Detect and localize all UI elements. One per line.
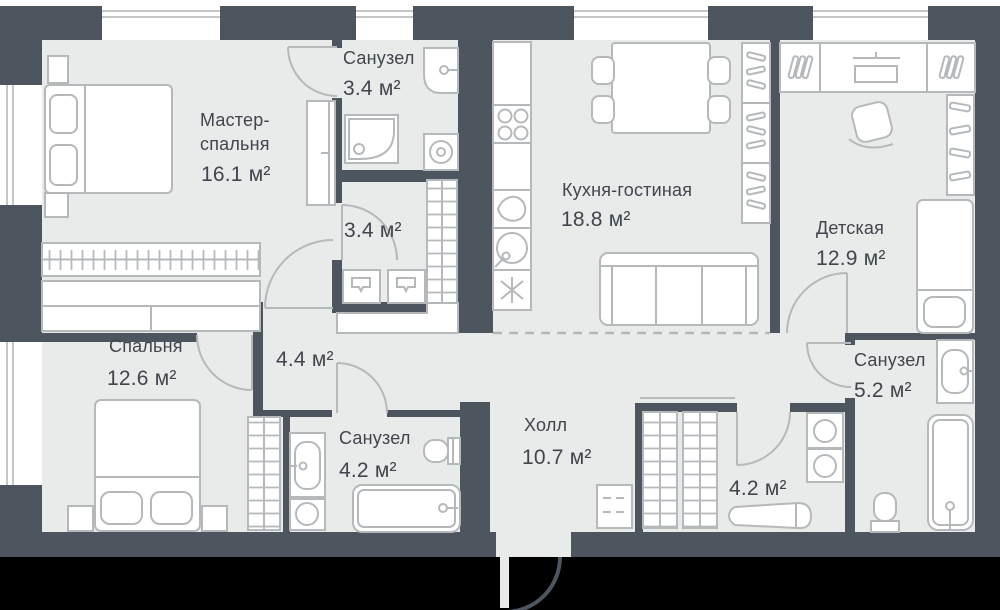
nightstand bbox=[202, 506, 227, 531]
entrance-threshold bbox=[496, 532, 571, 557]
label-kids-room-name: Детская bbox=[816, 218, 884, 238]
sofa bbox=[600, 253, 758, 325]
desk bbox=[855, 66, 897, 82]
chair bbox=[708, 57, 730, 84]
floor-plan: Мастер- спальня 16.1 м² Санузел 3.4 м² 3… bbox=[0, 0, 1000, 610]
pillow bbox=[151, 492, 192, 524]
drawer-unit bbox=[343, 270, 380, 303]
pillow bbox=[50, 145, 77, 185]
label-master-bedroom-name1: Мастер- bbox=[200, 110, 270, 130]
drawer-unit bbox=[388, 270, 425, 303]
label-master-bedroom-area: 16.1 м² bbox=[201, 163, 271, 186]
label-kitchen-living-area: 18.8 м² bbox=[561, 208, 631, 231]
label-master-bedroom-name2: спальня bbox=[200, 134, 270, 154]
wardrobe-section bbox=[780, 43, 820, 92]
shoe-cabinet bbox=[597, 485, 632, 528]
nightstand bbox=[48, 56, 68, 83]
chair bbox=[708, 96, 730, 123]
label-bathroom-bedroom-area: 4.2 м² bbox=[339, 459, 397, 482]
toilet bbox=[874, 493, 896, 521]
label-bedroom-name: Спальня bbox=[109, 336, 183, 356]
bedroom-furniture bbox=[68, 400, 280, 531]
label-bedroom-area: 12.6 м² bbox=[107, 367, 177, 390]
pillow bbox=[924, 297, 965, 327]
label-corridor-area: 4.4 м² bbox=[276, 348, 334, 371]
label-bathroom-kids-name: Санузел bbox=[854, 350, 926, 370]
label-storage-area: 4.2 м² bbox=[729, 477, 787, 500]
label-kitchen-living-name: Кухня-гостиная bbox=[562, 180, 692, 200]
dining-table bbox=[612, 43, 710, 133]
pillow bbox=[50, 95, 77, 133]
desk-chair bbox=[850, 100, 894, 144]
label-hall-area: 10.7 м² bbox=[522, 446, 592, 469]
floor-plan-svg: Мастер- спальня 16.1 м² Санузел 3.4 м² 3… bbox=[0, 0, 1000, 610]
wardrobe-section bbox=[927, 43, 975, 92]
label-wardrobe-area: 3.4 м² bbox=[344, 219, 402, 242]
bench bbox=[729, 503, 811, 528]
label-bathroom-master-name: Санузел bbox=[343, 48, 415, 68]
label-bathroom-bedroom-name: Санузел bbox=[339, 428, 411, 448]
label-bathroom-master-area: 3.4 м² bbox=[343, 77, 401, 100]
nightstand bbox=[68, 506, 93, 531]
pillow bbox=[101, 492, 142, 524]
label-kids-room-area: 12.9 м² bbox=[816, 247, 886, 270]
label-hall-name: Холл bbox=[524, 415, 567, 435]
label-bathroom-kids-area: 5.2 м² bbox=[854, 379, 912, 402]
shower bbox=[345, 115, 398, 163]
chair bbox=[592, 57, 614, 84]
chair bbox=[592, 96, 614, 123]
nightstand bbox=[45, 193, 68, 217]
toilet bbox=[424, 440, 448, 462]
